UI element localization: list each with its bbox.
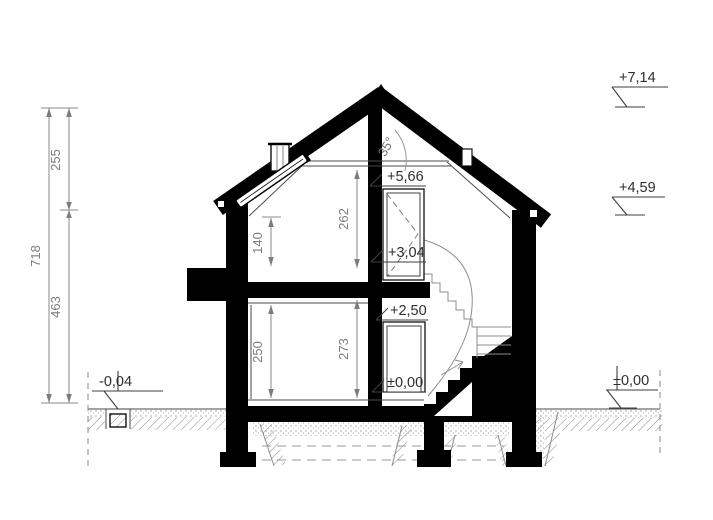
cross-section-sheet: 718 255 463 262 140 250 273 35° +7,14 <box>0 0 713 520</box>
left-wall <box>226 202 248 454</box>
right-eave-notch <box>530 210 537 217</box>
stair-direction-arrow <box>441 360 463 375</box>
right-footing <box>506 452 542 467</box>
roof-left-slope <box>218 94 383 208</box>
stair-window-attic <box>383 189 424 280</box>
level-marker-grade-right: ±0,00 <box>606 366 658 408</box>
level-marker-eaves: +4,59 <box>612 180 665 215</box>
dim-ground-room-height: 250 <box>250 341 265 363</box>
dimension-lines-left: 718 255 463 <box>28 108 78 403</box>
dim-attic-room-height: 262 <box>336 208 351 230</box>
level-ground-floor-label: ±0,00 <box>387 375 423 391</box>
level-eaves-label: +4,59 <box>619 180 656 196</box>
level-landing-label: +3,04 <box>388 245 425 261</box>
dim-wall-zone: 463 <box>48 296 63 318</box>
center-pier <box>424 420 444 452</box>
level-grade-right-label: ±0,00 <box>613 373 649 389</box>
left-eave-notch <box>218 201 224 207</box>
drainage-pit <box>105 409 131 432</box>
level-grade-left-label: -0,04 <box>99 374 132 390</box>
level-ridge-label: +7,14 <box>619 70 656 86</box>
dim-roof-zone: 255 <box>48 149 63 171</box>
left-footing <box>220 452 256 467</box>
level-first-floor-label: +2,50 <box>390 303 427 319</box>
center-footing <box>417 450 451 467</box>
roof-vent-pipe <box>462 149 472 166</box>
level-marker-first-floor: +2,50 <box>376 303 428 320</box>
floor-slab <box>246 282 430 298</box>
dim-knee-wall-height: 140 <box>250 232 265 254</box>
level-attic-top-label: +5,66 <box>387 169 424 185</box>
dim-total-height: 718 <box>28 245 43 267</box>
cross-section-drawing: 718 255 463 262 140 250 273 35° +7,14 <box>0 0 713 520</box>
level-marker-ridge: +7,14 <box>612 70 668 107</box>
dim-ground-struct-height: 273 <box>336 338 351 360</box>
right-wall <box>512 210 536 454</box>
level-marker-grade-left: -0,04 <box>92 371 163 409</box>
